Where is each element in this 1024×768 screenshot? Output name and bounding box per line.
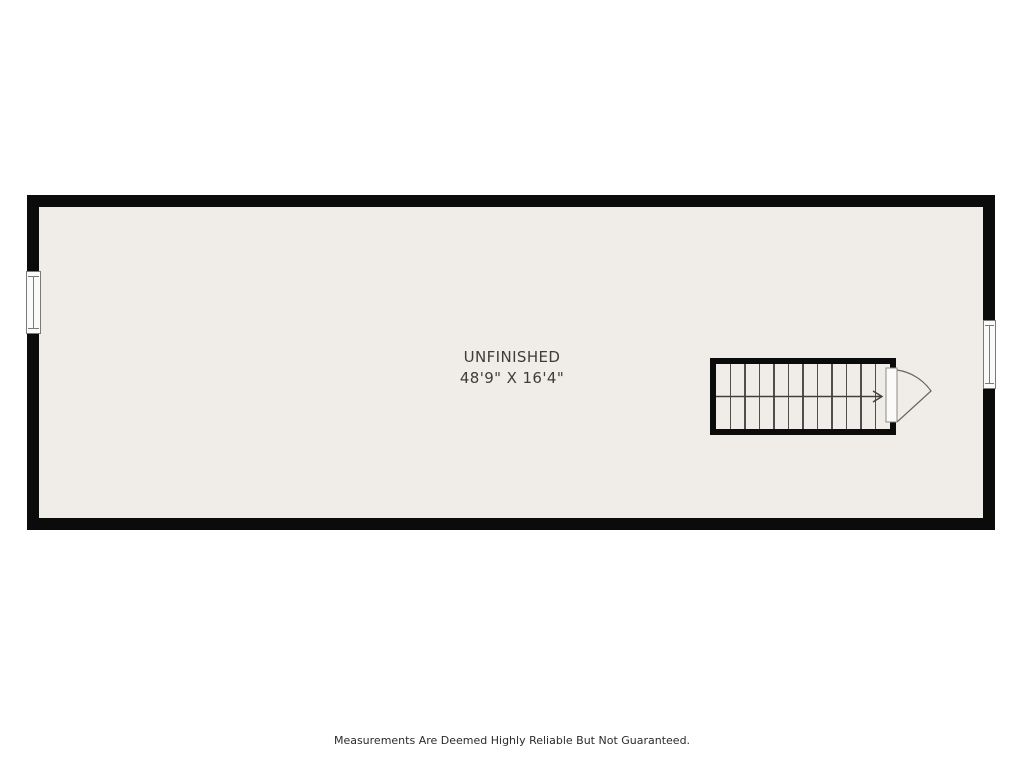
room-label: UNFINISHED bbox=[0, 347, 1024, 368]
window-symbol-left bbox=[26, 271, 41, 334]
disclaimer-text: Measurements Are Deemed Highly Reliable … bbox=[0, 734, 1024, 747]
window-glass-line bbox=[28, 276, 39, 329]
floor-plan: UNFINISHED 48'9" X 16'4" Measurements Ar… bbox=[0, 0, 1024, 768]
room-label-block: UNFINISHED 48'9" X 16'4" bbox=[0, 347, 1024, 389]
room-dimensions: 48'9" X 16'4" bbox=[0, 368, 1024, 389]
